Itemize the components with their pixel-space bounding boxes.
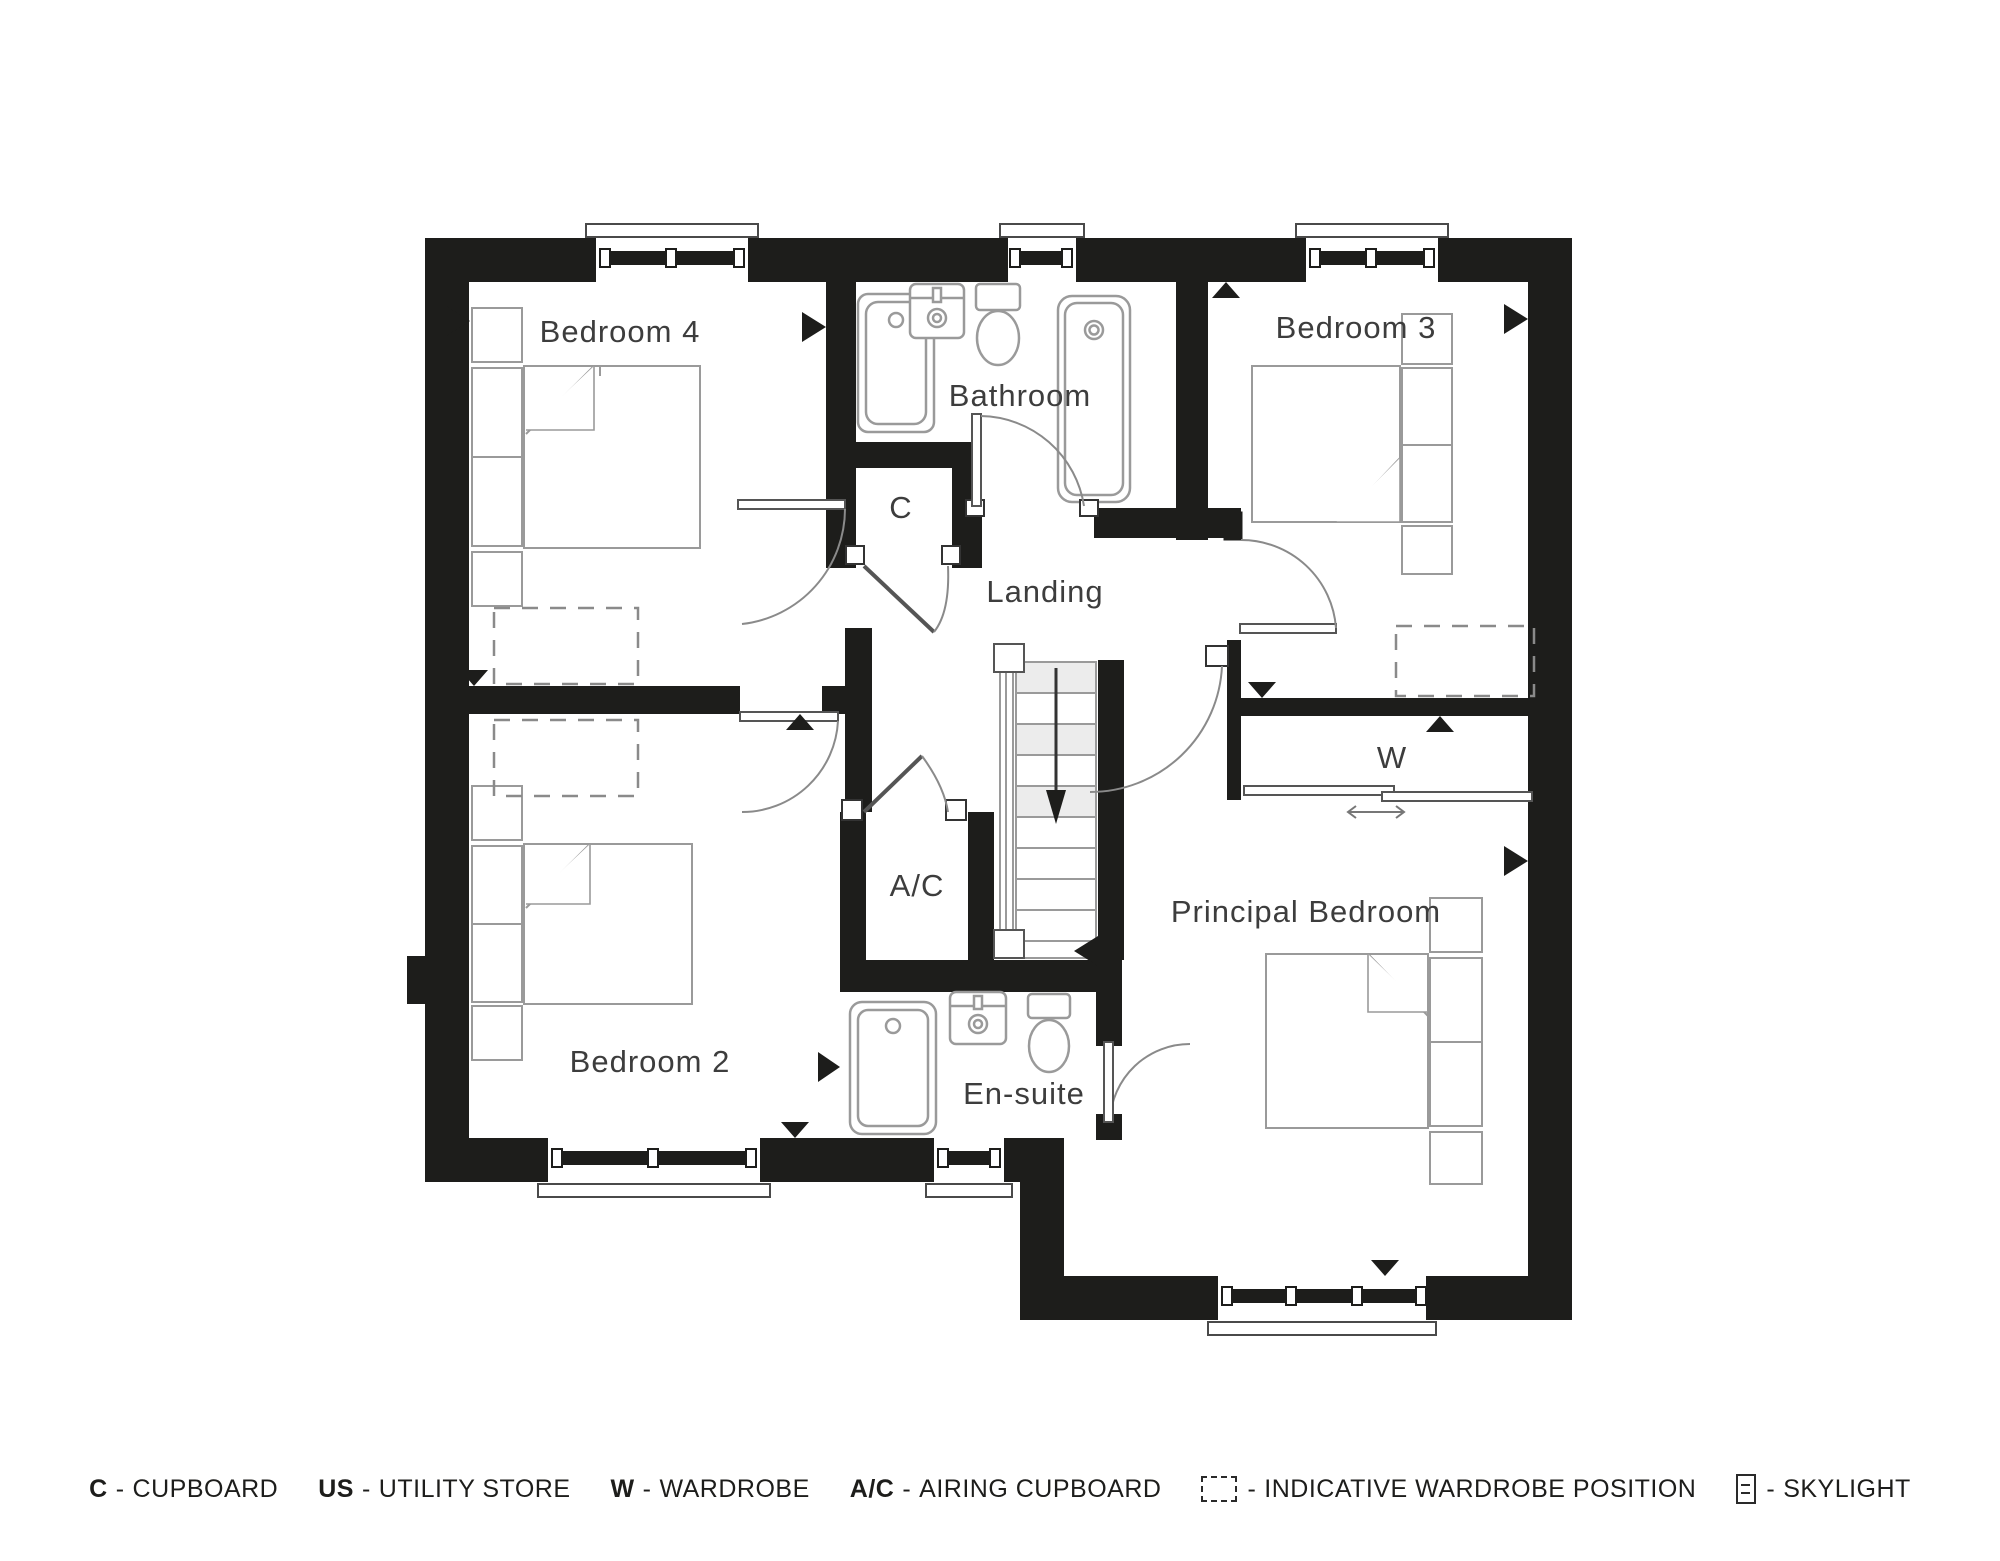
- skylight-icon: [1736, 1474, 1756, 1504]
- bedroom3-bed: [1252, 314, 1452, 574]
- legend-item-wardrobe: W - WARDROBE: [611, 1475, 810, 1504]
- marker-wdivider-left: [1248, 682, 1276, 698]
- legend-label: INDICATIVE WARDROBE POSITION: [1264, 1475, 1696, 1504]
- legend-item-airing-cupboard: A/C - AIRING CUPBOARD: [850, 1475, 1162, 1504]
- ensuite-shower-bath: [850, 1002, 936, 1134]
- bedroom2-window: [538, 1138, 770, 1197]
- label-principal: Principal Bedroom: [1171, 894, 1441, 929]
- legend-sep: -: [1247, 1475, 1256, 1504]
- marker-bedroom2-bottom: [781, 1122, 809, 1138]
- label-wardrobe: W: [1377, 740, 1407, 775]
- marker-wdivider-right: [1426, 716, 1454, 732]
- ensuite-skylight-window: [926, 1138, 1012, 1197]
- legend-key: A/C: [850, 1475, 895, 1504]
- wardrobe-sliding-door: [1244, 786, 1532, 818]
- legend-sep: -: [1766, 1475, 1775, 1504]
- bedroom3-door: [1224, 512, 1336, 633]
- floorplan-page: Bedroom 4 Bathroom Bedroom 3 Landing C A…: [0, 0, 2000, 1561]
- legend: C - CUPBOARD US - UTILITY STORE W - WARD…: [0, 1474, 2000, 1504]
- marker-principal-bottom: [1371, 1260, 1399, 1276]
- legend-sep: -: [902, 1475, 911, 1504]
- principal-bed: [1266, 898, 1482, 1184]
- principal-window: [1208, 1276, 1436, 1335]
- label-bedroom3: Bedroom 3: [1276, 310, 1437, 345]
- floorplan-svg: Bedroom 4 Bathroom Bedroom 3 Landing C A…: [0, 0, 2000, 1561]
- ensuite-fixtures: [850, 992, 1070, 1134]
- legend-item-wardrobe-position: - INDICATIVE WARDROBE POSITION: [1201, 1475, 1696, 1504]
- label-airing-cupboard: A/C: [890, 868, 945, 903]
- legend-label: SKYLIGHT: [1783, 1475, 1911, 1504]
- bedroom4-window: [586, 224, 758, 288]
- label-ensuite: En-suite: [963, 1076, 1085, 1111]
- bathroom-toilet: [976, 284, 1020, 365]
- wardrobe-position-bedroom3: [1396, 626, 1534, 696]
- wardrobe-position-bedroom4: [494, 608, 638, 684]
- legend-label: UTILITY STORE: [379, 1475, 571, 1504]
- marker-bedroom4-right: [802, 312, 826, 342]
- legend-key: W: [611, 1475, 635, 1504]
- legend-sep: -: [643, 1475, 652, 1504]
- wardrobe-position-bedroom2: [494, 720, 638, 796]
- legend-label: CUPBOARD: [133, 1475, 279, 1504]
- ensuite-sink: [950, 992, 1006, 1044]
- marker-principal-right: [1504, 846, 1528, 876]
- bathroom-skylight-window: [1000, 224, 1084, 288]
- legend-key: C: [89, 1475, 108, 1504]
- legend-item-skylight: - SKYLIGHT: [1736, 1474, 1910, 1504]
- label-cupboard: C: [889, 490, 912, 525]
- legend-sep: -: [116, 1475, 125, 1504]
- bedroom3-window: [1296, 224, 1448, 288]
- bedroom2-bed: [472, 786, 692, 1060]
- marker-ensuite-left: [818, 1052, 840, 1082]
- legend-label: AIRING CUPBOARD: [919, 1475, 1161, 1504]
- marker-bedroom3-top: [1212, 282, 1240, 298]
- ensuite-door: [1104, 1042, 1190, 1122]
- label-landing: Landing: [986, 574, 1103, 609]
- label-bathroom: Bathroom: [949, 378, 1091, 413]
- bathroom-sink: [910, 284, 964, 338]
- slider-arrow: [1348, 806, 1404, 818]
- legend-sep: -: [362, 1475, 371, 1504]
- legend-item-utility-store: US - UTILITY STORE: [318, 1475, 570, 1504]
- bedroom4-bed: [472, 308, 700, 606]
- cupboard-door: [846, 546, 960, 632]
- ensuite-toilet: [1028, 994, 1070, 1072]
- legend-key: US: [318, 1475, 354, 1504]
- marker-bedroom3-right: [1504, 304, 1528, 334]
- label-bedroom4: Bedroom 4: [540, 314, 701, 349]
- stairs: [994, 644, 1096, 958]
- label-bedroom2: Bedroom 2: [570, 1044, 731, 1079]
- legend-label: WARDROBE: [659, 1475, 809, 1504]
- legend-item-cupboard: C - CUPBOARD: [89, 1475, 278, 1504]
- wardrobe-position-icon: [1201, 1476, 1237, 1502]
